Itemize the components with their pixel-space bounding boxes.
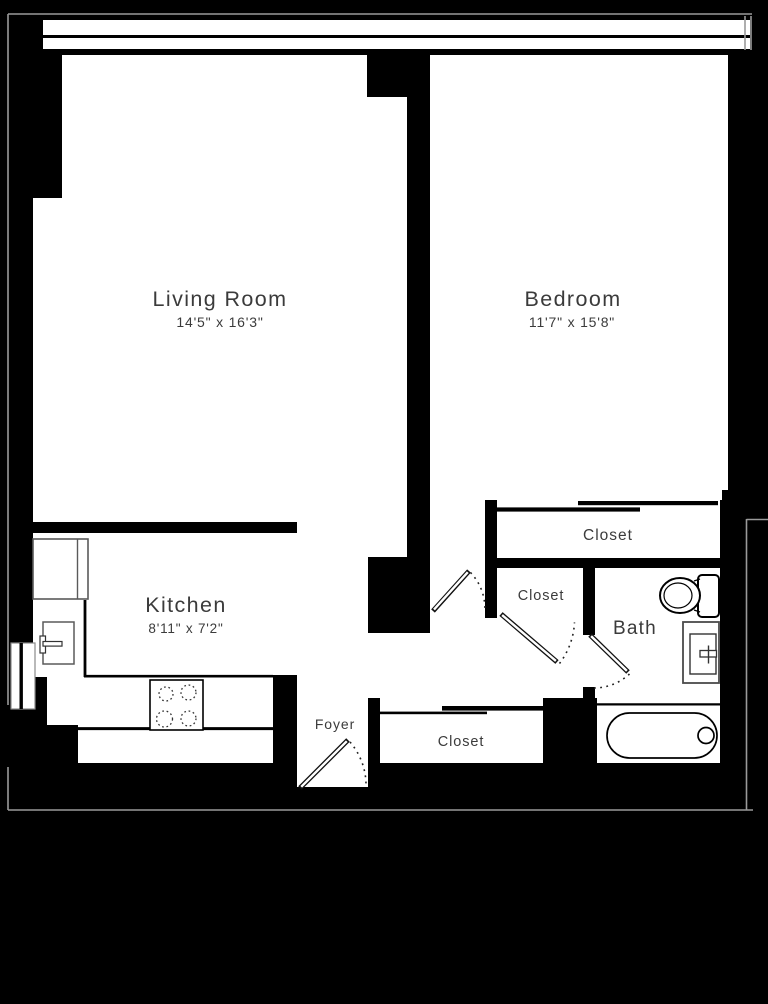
foyer-closet-label: Closet (438, 734, 485, 750)
stove-icon (150, 680, 203, 730)
foyer-label: Foyer (315, 716, 355, 732)
refrigerator-icon (33, 539, 88, 599)
window-band-icon (43, 16, 751, 50)
floor-plan-canvas: Living Room 14'5" x 16'3" Bedroom 11'7" … (0, 0, 768, 1004)
kitchen-label: Kitchen (145, 593, 227, 617)
kitchen-sink-icon (40, 622, 74, 664)
kitchen-dimensions: 8'11" x 7'2" (148, 621, 223, 636)
living-room-label: Living Room (153, 287, 288, 311)
bath-label: Bath (613, 618, 657, 639)
floor-plan: Living Room 14'5" x 16'3" Bedroom 11'7" … (0, 0, 768, 1004)
living-room-floor (33, 198, 407, 522)
cabinet-band (78, 727, 273, 763)
bedroom-closet-shelf-line (578, 501, 718, 505)
bedroom-floor (430, 55, 728, 490)
toilet-icon (660, 575, 719, 617)
foyer-closet-shelf-line (442, 706, 543, 711)
living-room-floor-mid (62, 97, 407, 198)
living-room-floor-top (62, 55, 367, 98)
bedroom-label: Bedroom (524, 287, 621, 311)
bedroom-closet-label: Closet (583, 527, 633, 544)
hall-closet-label: Closet (518, 588, 565, 604)
living-room-dimensions: 14'5" x 16'3" (176, 314, 263, 330)
corridor-floor (297, 522, 407, 558)
hall-floor (368, 633, 595, 698)
side-window-icon (11, 643, 35, 709)
vanity-sink-icon (683, 622, 719, 683)
bedroom-doorway-floor (430, 500, 485, 633)
bedroom-dimensions: 11'7" x 15'8" (529, 314, 615, 330)
